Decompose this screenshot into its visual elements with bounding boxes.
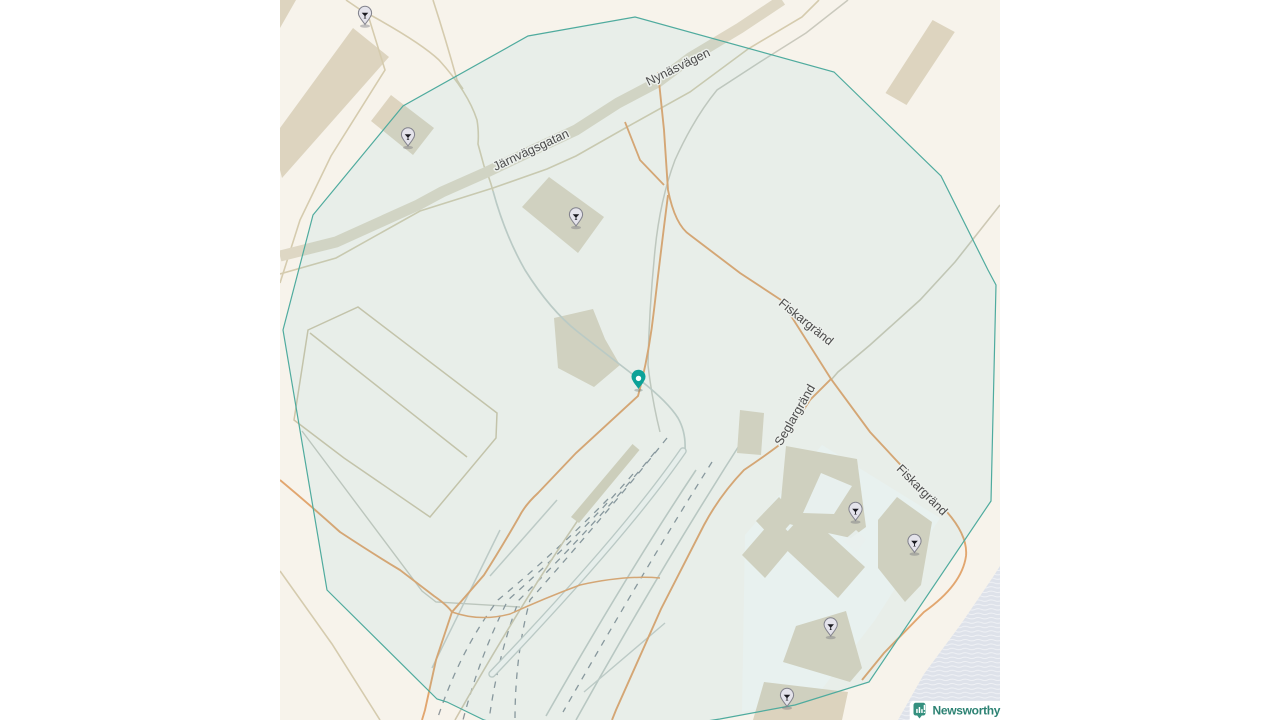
svg-text:Newsworthy: Newsworthy [933, 704, 1001, 718]
